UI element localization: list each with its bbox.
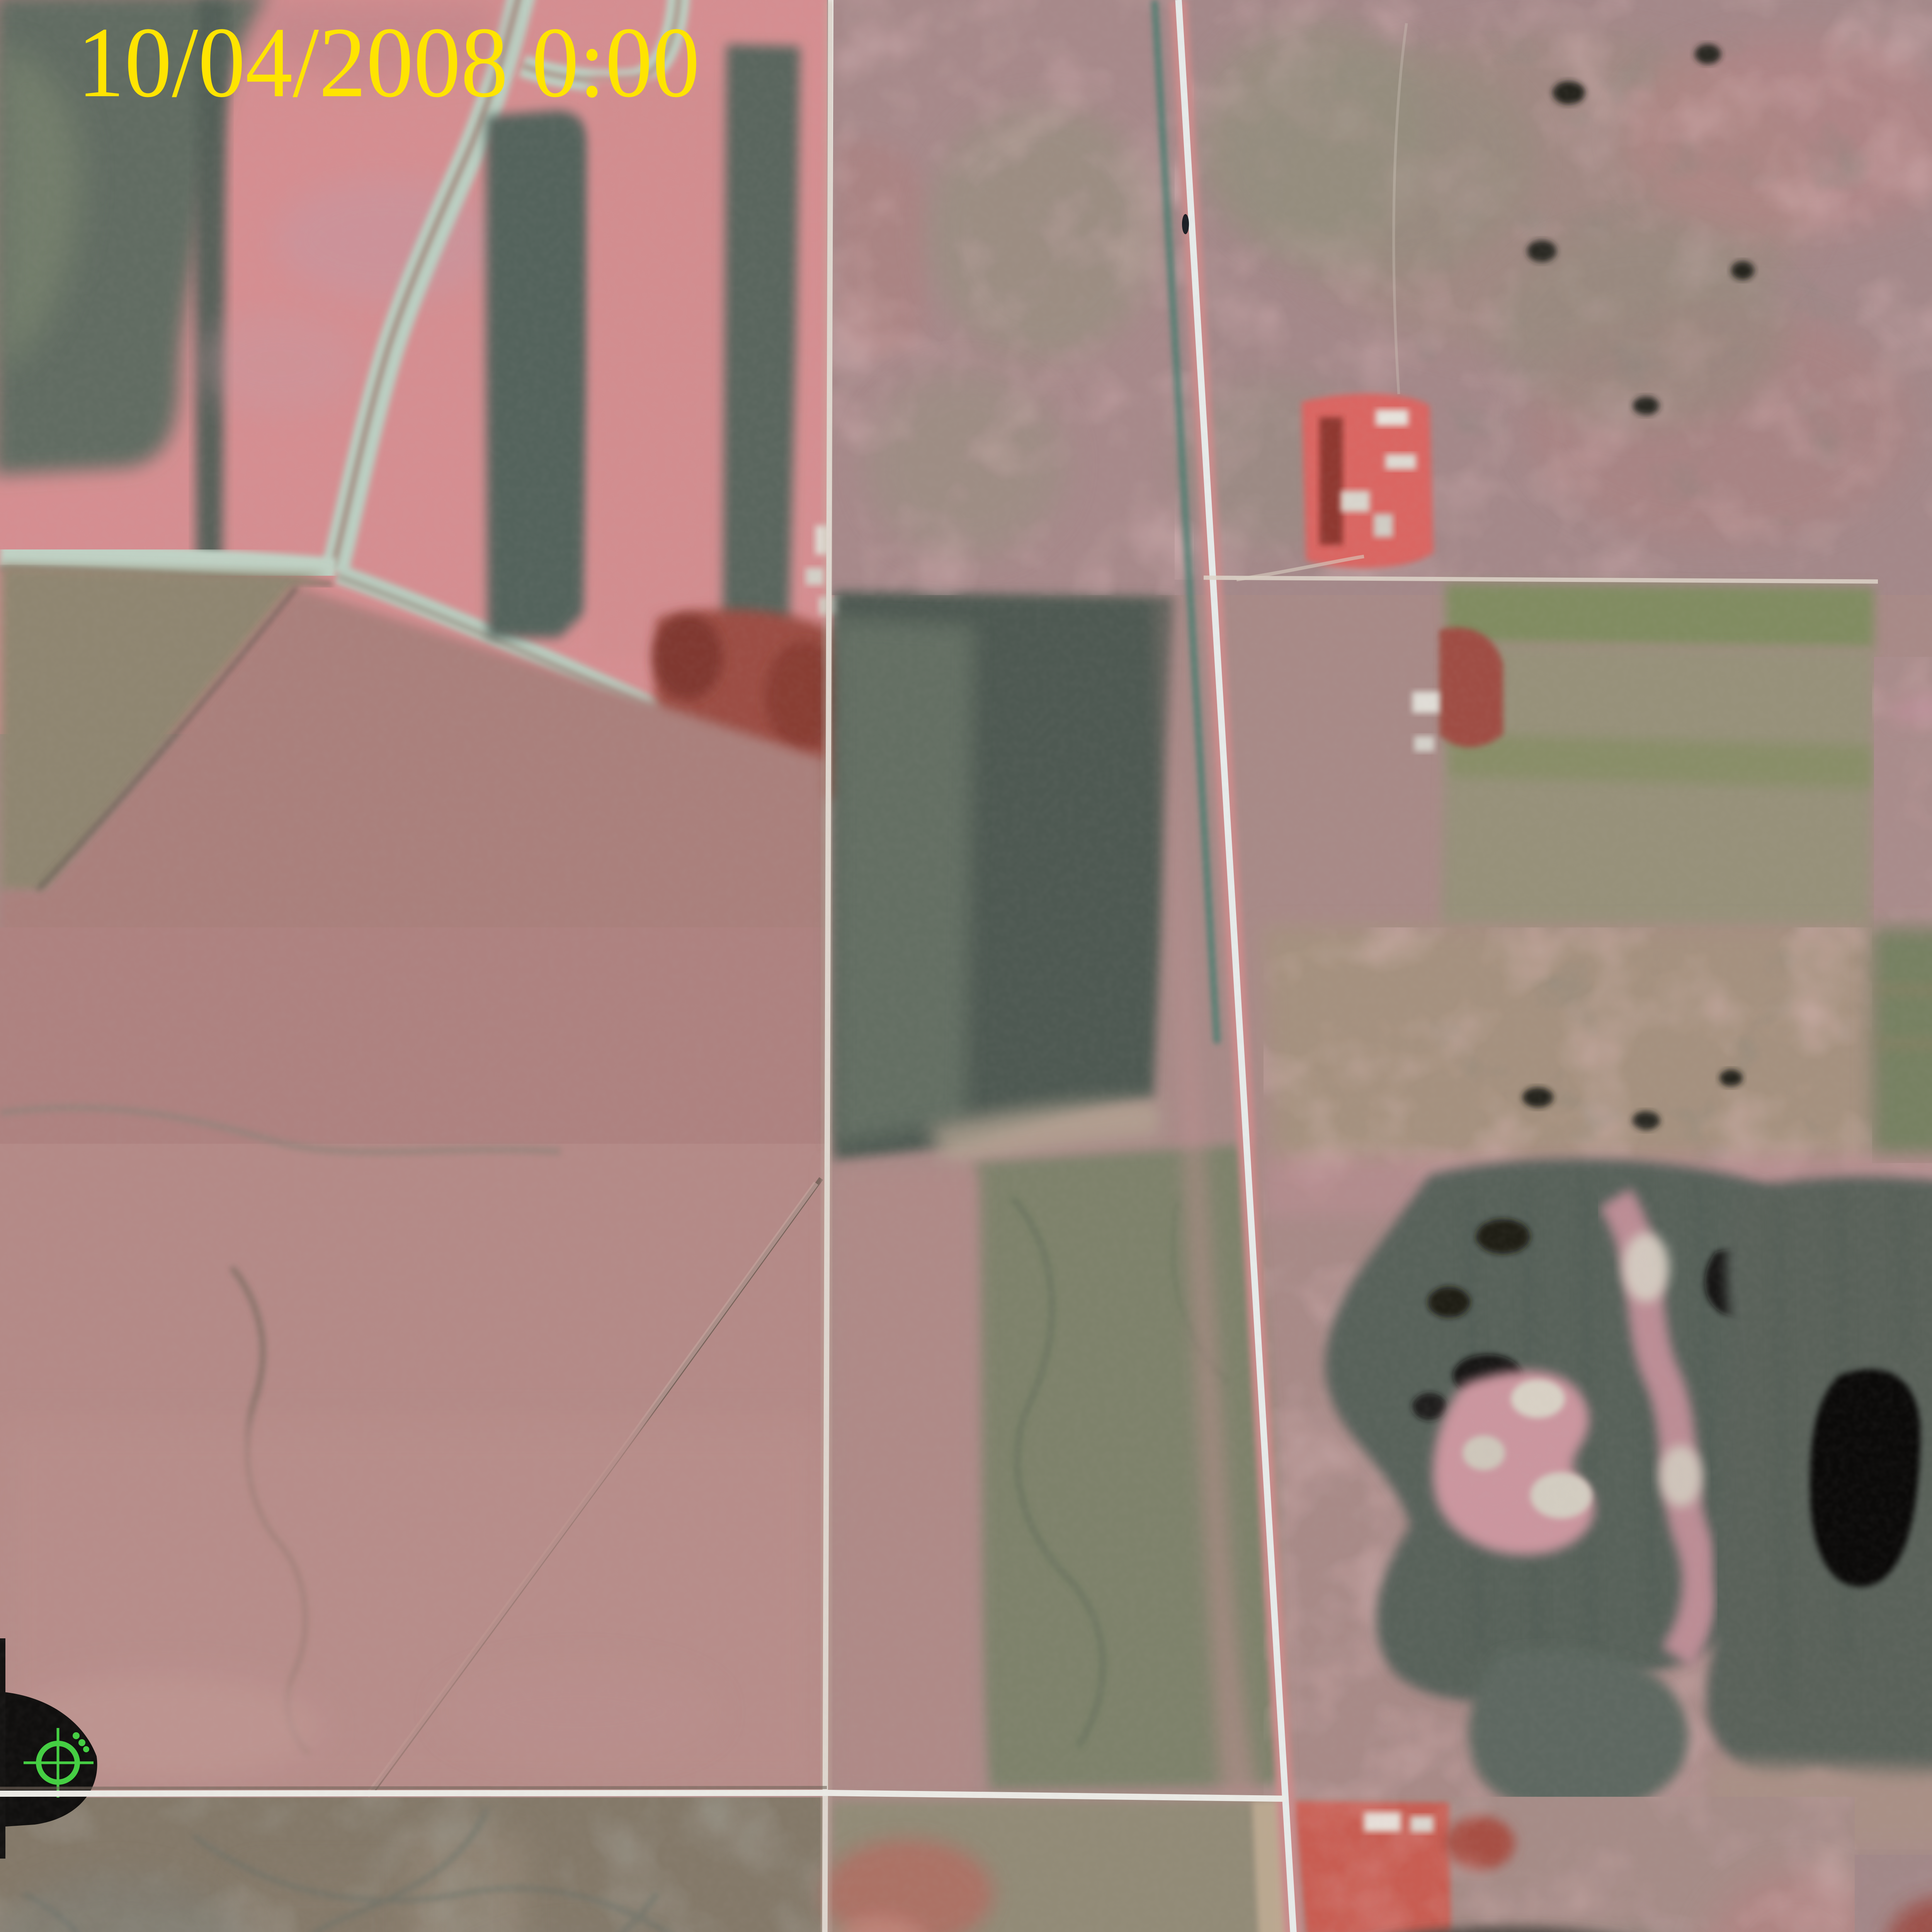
svg-text:10/04/2008 0:00: 10/04/2008 0:00 [77,7,700,118]
